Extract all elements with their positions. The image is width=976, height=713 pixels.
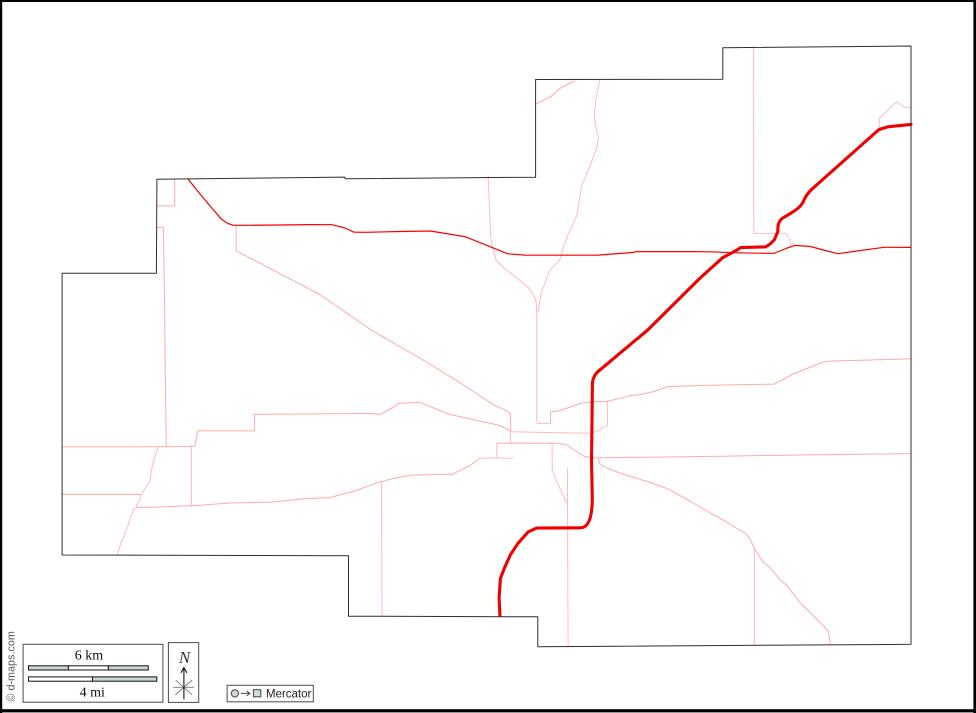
svg-text:© d-maps.com: © d-maps.com [6,631,18,701]
svg-text:N: N [178,648,192,667]
svg-text:6 km: 6 km [75,649,104,664]
svg-text:4 mi: 4 mi [80,686,105,701]
svg-text:Mercator: Mercator [266,688,312,700]
